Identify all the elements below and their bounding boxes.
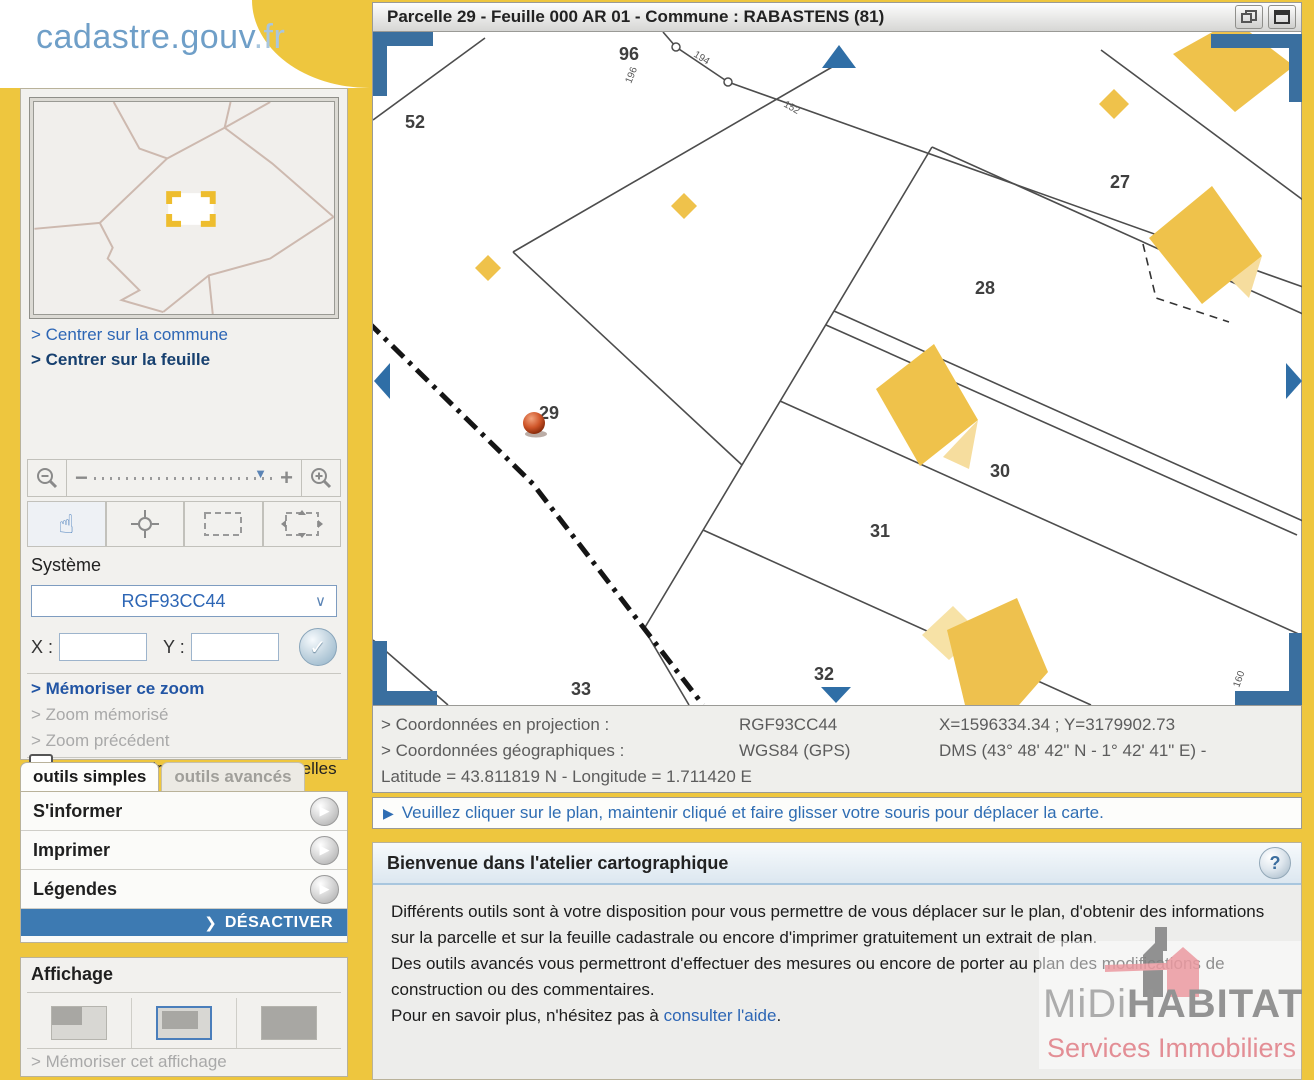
building <box>947 598 1048 705</box>
pan-right-arrow[interactable] <box>1286 363 1302 399</box>
system-label: Système <box>31 555 101 576</box>
midihabitat-subtitle: Services Immobiliers <box>1047 1035 1296 1061</box>
parcel-label-30: 30 <box>990 461 1010 481</box>
logo-fr: .fr <box>254 18 286 56</box>
tool-item-legendes[interactable]: Légendes ▶ <box>21 870 347 909</box>
welcome-paragraph-3: Pour en savoir plus, n'hésitez pas à con… <box>391 1003 1283 1029</box>
chevron-down-icon: ∨ <box>315 592 336 610</box>
zoom-control-row: − + ▼ <box>27 459 341 497</box>
magnifier-minus-icon <box>35 466 59 490</box>
map-title: Parcelle 29 - Feuille 000 AR 01 - Commun… <box>373 7 1235 27</box>
selected-parcel-marker <box>523 412 545 434</box>
system-select-value: RGF93CC44 <box>32 591 315 612</box>
hand-icon: ☝ <box>58 509 74 540</box>
welcome-title: Bienvenue dans l'atelier cartographique <box>387 853 728 874</box>
x-input[interactable] <box>59 633 147 661</box>
parcel-label-33: 33 <box>571 679 591 699</box>
logo-cadastre: cadastre.gouv <box>36 18 254 56</box>
deactivate-button[interactable]: ❯ DÉSACTIVER <box>21 909 347 936</box>
map-canvas[interactable]: 52 96 27 28 29 30 31 32 33 196 194 152 1… <box>372 32 1302 705</box>
link-memorized-zoom[interactable]: > Zoom mémorisé <box>31 705 168 725</box>
small-building-diamond <box>671 193 697 219</box>
welcome-header: Bienvenue dans l'atelier cartographique … <box>373 843 1301 885</box>
zoom-slider-track[interactable] <box>94 477 274 480</box>
y-input[interactable] <box>191 633 279 661</box>
road-number-196: 196 <box>624 65 641 85</box>
zoom-slider[interactable]: − + ▼ <box>67 459 301 497</box>
system-select[interactable]: RGF93CC44 ∨ <box>31 585 337 617</box>
geographic-values: DMS (43° 48' 42" N - 1° 42' 41" E) - <box>939 738 1301 764</box>
parcel-labels: 52 96 27 28 29 30 31 32 33 <box>405 44 1130 699</box>
zoom-out-button[interactable] <box>27 459 67 497</box>
geographic-coordinates-row: > Coordonnées géographiques : WGS84 (GPS… <box>381 738 1301 764</box>
site-logo: cadastre.gouv.fr <box>36 18 285 57</box>
validate-coordinates-button[interactable]: ✓ <box>299 628 337 666</box>
road-number-152: 152 <box>782 99 802 117</box>
geographic-label: > Coordonnées géographiques : <box>381 738 739 764</box>
projection-values: X=1596334.34 ; Y=3179902.73 <box>939 712 1301 738</box>
map-tools-row: ☝ <box>27 501 341 547</box>
chevron-right-icon: ❯ <box>204 914 217 932</box>
zoom-in-button[interactable] <box>301 459 341 497</box>
simple-tools-panel: S'informer ▶ Imprimer ▶ Légendes ▶ ❯ DÉS… <box>20 791 348 943</box>
pan-left-arrow[interactable] <box>374 363 390 399</box>
corner-bracket-bottom-left[interactable] <box>373 641 437 705</box>
sidebar-main-panel: > Centrer sur la commune > Centrer sur l… <box>20 88 348 760</box>
pan-extent-tool[interactable] <box>263 501 342 547</box>
projection-label: > Coordonnées en projection : <box>381 712 739 738</box>
xy-coordinate-row: X : Y : ✓ <box>31 627 337 667</box>
link-center-commune[interactable]: > Centrer sur la commune <box>31 325 228 345</box>
instruction-bar: ▶ Veuillez cliquer sur le plan, mainteni… <box>372 797 1302 829</box>
link-center-feuille[interactable]: > Centrer sur la feuille <box>31 350 210 370</box>
page-right-edge <box>1302 0 1314 1080</box>
center-tool[interactable] <box>106 501 185 547</box>
display-options-row <box>27 998 341 1048</box>
map-pan-arrows <box>374 45 1302 703</box>
projection-system: RGF93CC44 <box>739 712 939 738</box>
projection-coordinates-row: > Coordonnées en projection : RGF93CC44 … <box>381 712 1301 738</box>
parcel-boundary-lines <box>373 32 1303 705</box>
zoom-slider-handle[interactable]: ▼ <box>254 466 267 481</box>
coordinates-panel: > Coordonnées en projection : RGF93CC44 … <box>372 705 1302 793</box>
pan-arrows-icon <box>280 509 324 539</box>
parcel-label-27: 27 <box>1110 172 1130 192</box>
display-panel: Affichage > Mémoriser cet affichage <box>20 957 348 1077</box>
restore-window-button[interactable] <box>1235 5 1263 29</box>
parcel-label-28: 28 <box>975 278 995 298</box>
pan-down-arrow[interactable] <box>821 687 851 703</box>
play-arrow-icon[interactable]: ▶ <box>310 836 339 865</box>
welcome-panel: Bienvenue dans l'atelier cartographique … <box>372 842 1302 1080</box>
play-arrow-icon: ▶ <box>383 805 394 822</box>
road-number-160: 160 <box>1231 669 1247 689</box>
question-mark-icon: ? <box>1270 853 1281 874</box>
instruction-text: Veuillez cliquer sur le plan, maintenir … <box>402 803 1104 823</box>
divider <box>27 673 341 674</box>
welcome-paragraph-2: Des outils avancés vous permettront d'ef… <box>391 951 1283 1003</box>
road-number-194: 194 <box>691 49 711 67</box>
full-layout-icon <box>261 1006 317 1040</box>
divider <box>27 992 341 993</box>
survey-point <box>672 43 680 51</box>
corner-bracket-top-left[interactable] <box>373 32 433 96</box>
overview-minimap-frame <box>29 97 339 319</box>
divider <box>27 1048 341 1049</box>
display-option-split[interactable] <box>27 998 132 1048</box>
tools-tabs: outils simples outils avancés <box>20 762 348 792</box>
framed-layout-icon <box>156 1006 212 1040</box>
buildings-layer <box>475 32 1294 705</box>
y-label: Y : <box>163 637 185 658</box>
display-title: Affichage <box>31 964 113 985</box>
link-previous-zoom[interactable]: > Zoom précédent <box>31 731 169 751</box>
parcel-label-96: 96 <box>619 44 639 64</box>
pan-hand-tool[interactable]: ☝ <box>27 501 106 547</box>
magnifier-plus-icon <box>309 466 333 490</box>
tab-outils-simples[interactable]: outils simples <box>20 762 159 792</box>
small-building-diamond <box>1099 89 1129 119</box>
display-option-framed[interactable] <box>132 998 237 1048</box>
minimap-viewport-fill <box>168 193 214 225</box>
play-arrow-icon[interactable]: ▶ <box>310 797 339 826</box>
overview-minimap[interactable] <box>33 101 335 315</box>
link-memorize-zoom[interactable]: > Mémoriser ce zoom <box>31 679 204 699</box>
welcome-body: Différents outils sont à votre dispositi… <box>373 885 1301 1069</box>
small-building-diamond <box>475 255 501 281</box>
parcel-label-31: 31 <box>870 521 890 541</box>
survey-point <box>724 78 732 86</box>
geographic-system: WGS84 (GPS) <box>739 738 939 764</box>
pan-up-arrow[interactable] <box>822 45 856 68</box>
play-arrow-icon[interactable]: ▶ <box>310 875 339 904</box>
tab-outils-avances[interactable]: outils avancés <box>161 762 304 792</box>
cascade-windows-icon <box>1241 10 1257 24</box>
parcel-label-32: 32 <box>814 664 834 684</box>
corner-bracket-bottom-right[interactable] <box>1235 633 1303 705</box>
zoom-box-tool[interactable] <box>184 501 263 547</box>
zoom-slider-plus[interactable]: + <box>280 467 293 489</box>
map-title-bar: Parcelle 29 - Feuille 000 AR 01 - Commun… <box>372 2 1302 32</box>
check-icon: ✓ <box>309 635 326 660</box>
link-memorize-display[interactable]: > Mémoriser cet affichage <box>31 1052 227 1072</box>
viewport-corner-brackets <box>373 32 1303 705</box>
display-option-full[interactable] <box>237 998 341 1048</box>
welcome-paragraph-1: Différents outils sont à votre dispositi… <box>391 899 1283 951</box>
zoom-slider-minus[interactable]: − <box>75 467 88 489</box>
commune-boundary-line <box>373 322 703 705</box>
split-layout-icon <box>51 1006 107 1040</box>
latitude-longitude-row: Latitude = 43.811819 N - Longitude = 1.7… <box>381 764 1301 790</box>
maximize-window-button[interactable] <box>1268 5 1296 29</box>
crosshair-icon <box>130 509 160 539</box>
help-button[interactable]: ? <box>1259 847 1291 879</box>
maximize-icon <box>1274 10 1290 24</box>
help-link[interactable]: consulter l'aide <box>664 1006 777 1025</box>
tool-item-sinformer[interactable]: S'informer ▶ <box>21 792 347 831</box>
cadastral-map: 52 96 27 28 29 30 31 32 33 196 194 152 1… <box>373 32 1303 705</box>
tool-item-imprimer[interactable]: Imprimer ▶ <box>21 831 347 870</box>
x-label: X : <box>31 637 53 658</box>
parcel-label-52: 52 <box>405 112 425 132</box>
selection-rectangle-icon <box>203 511 243 537</box>
